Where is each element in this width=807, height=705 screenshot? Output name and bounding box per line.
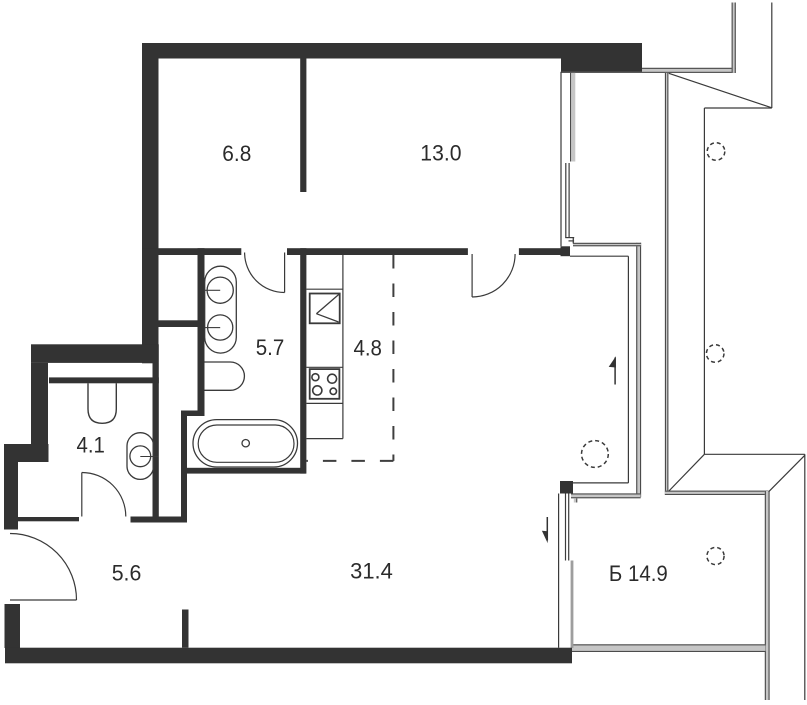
svg-text:13.0: 13.0 (420, 141, 461, 166)
svg-text:4.1: 4.1 (77, 433, 105, 458)
svg-text:31.4: 31.4 (350, 559, 393, 584)
svg-text:4.8: 4.8 (353, 336, 382, 361)
svg-text:6.8: 6.8 (222, 141, 251, 166)
svg-text:5.7: 5.7 (256, 335, 285, 360)
svg-text:5.6: 5.6 (112, 561, 142, 586)
svg-text:Б 14.9: Б 14.9 (609, 561, 668, 586)
